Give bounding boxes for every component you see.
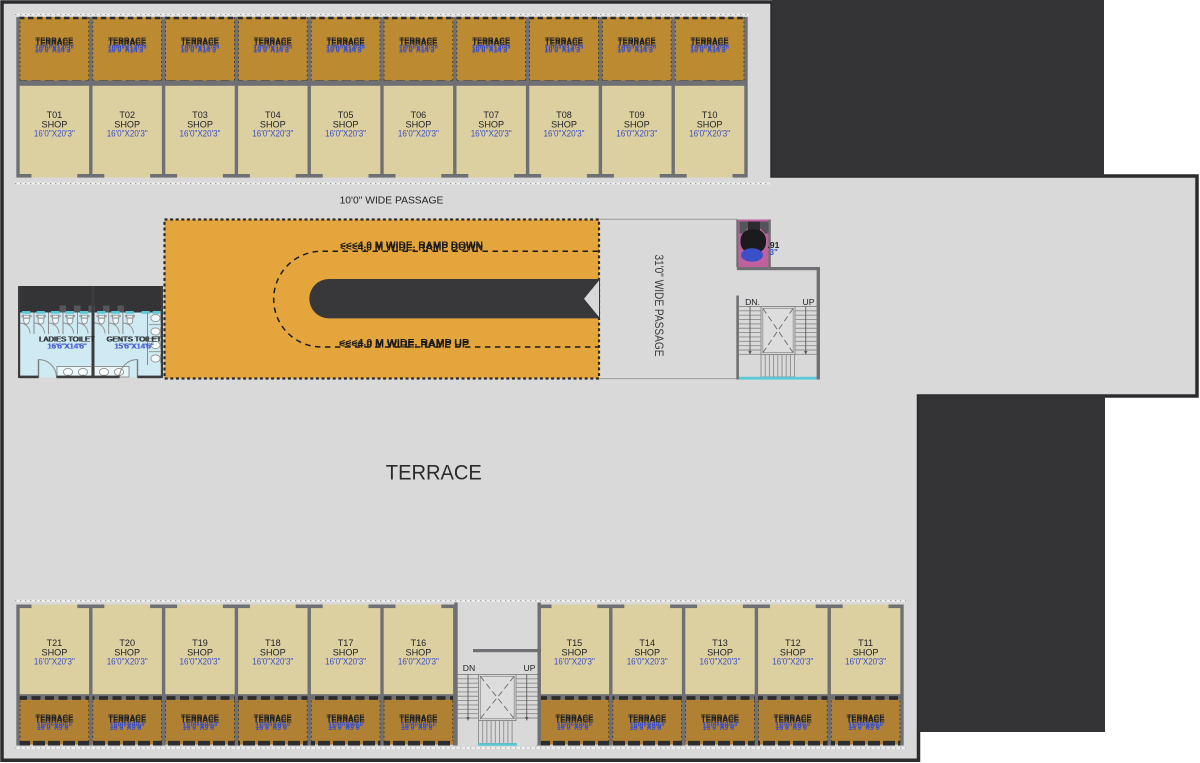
svg-text:16'0"X20'3": 16'0"X20'3" [180,657,221,667]
svg-text:T14: T14 [639,638,655,648]
svg-text:16'0"X20'3": 16'0"X20'3" [845,657,886,667]
svg-text:T13: T13 [712,638,728,648]
svg-text:16'0"X9'6": 16'0"X9'6" [557,721,592,730]
svg-text:T06: T06 [411,110,427,120]
svg-text:16'0"X9'6": 16'0"X9'6" [110,721,145,730]
svg-text:T03: T03 [192,110,208,120]
svg-text:10'0"X14'3": 10'0"X14'3" [472,43,511,52]
svg-text:T09: T09 [629,110,645,120]
svg-text:T18: T18 [265,638,281,648]
svg-text:16'0"X20'3": 16'0"X20'3" [34,129,75,139]
svg-text:16'0"X9'6": 16'0"X9'6" [183,721,218,730]
svg-text:<<<4.0 M WIDE. RAMP DOWN: <<<4.0 M WIDE. RAMP DOWN [340,240,483,250]
svg-text:16'0"X9'6": 16'0"X9'6" [255,721,290,730]
svg-text:T21: T21 [47,638,63,648]
svg-text:10'0"X14'3": 10'0"X14'3" [326,43,365,52]
svg-text:T19: T19 [192,638,208,648]
svg-text:16'0"X20'3": 16'0"X20'3" [180,129,221,139]
svg-text:16'0"X20'3": 16'0"X20'3" [325,129,366,139]
svg-text:16'0"X20'3": 16'0"X20'3" [325,657,366,667]
svg-text:TERRACE: TERRACE [386,461,482,485]
svg-text:16'0"X20'3": 16'0"X20'3" [34,657,75,667]
svg-text:10'0"X14'3": 10'0"X14'3" [108,43,147,52]
svg-text:16'0"X9'6": 16'0"X9'6" [401,721,436,730]
svg-text:16'0"X20'3": 16'0"X20'3" [616,129,657,139]
svg-text:15'6"X14'6": 15'6"X14'6" [115,341,154,350]
svg-text:16'0"X20'3": 16'0"X20'3" [772,657,813,667]
svg-text:16'0"X9'6": 16'0"X9'6" [775,721,810,730]
svg-text:T04: T04 [265,110,281,120]
svg-text:10'0"X14'3": 10'0"X14'3" [690,43,729,52]
svg-text:3": 3" [770,248,778,257]
svg-text:T10: T10 [702,110,718,120]
svg-text:16'0"X9'6": 16'0"X9'6" [630,721,665,730]
svg-text:10'0" WIDE PASSAGE: 10'0" WIDE PASSAGE [340,196,444,207]
svg-text:16'0"X9'6": 16'0"X9'6" [703,721,738,730]
svg-text:16'0"X20'3": 16'0"X20'3" [107,129,148,139]
svg-text:16'0"X9'6": 16'0"X9'6" [328,721,363,730]
svg-text:T17: T17 [338,638,354,648]
svg-text:10'0"X14'3": 10'0"X14'3" [617,43,656,52]
svg-text:16'0"X20'3": 16'0"X20'3" [398,657,439,667]
svg-text:UP: UP [803,297,815,307]
svg-text:T11: T11 [858,638,873,648]
svg-text:16'0"X9'6": 16'0"X9'6" [37,721,72,730]
svg-text:<<<4.0 M WIDE. RAMP UP: <<<4.0 M WIDE. RAMP UP [339,337,469,347]
svg-text:16'0"X20'3": 16'0"X20'3" [471,129,512,139]
svg-text:10'0"X14'3": 10'0"X14'3" [545,43,584,52]
svg-text:T01: T01 [47,110,63,120]
svg-text:16'0"X20'3": 16'0"X20'3" [252,129,293,139]
svg-text:16'0"X20'3": 16'0"X20'3" [252,657,293,667]
svg-text:T08: T08 [556,110,572,120]
svg-text:16'6"X14'6": 16'6"X14'6" [48,341,87,350]
svg-text:T16: T16 [411,638,427,648]
svg-text:16'0"X20'3": 16'0"X20'3" [544,129,585,139]
svg-text:T05: T05 [338,110,354,120]
svg-text:T07: T07 [483,110,499,120]
svg-text:T02: T02 [119,110,135,120]
svg-text:DN.: DN. [745,297,760,307]
svg-text:10'0"X14'3": 10'0"X14'3" [253,43,292,52]
svg-text:16'0"X20'3": 16'0"X20'3" [554,657,595,667]
svg-text:DN: DN [463,663,475,673]
svg-text:31'0" WIDE PASSAGE: 31'0" WIDE PASSAGE [652,255,666,357]
svg-text:UP: UP [524,663,536,673]
svg-text:T15: T15 [567,638,583,648]
svg-text:16'0"X20'3": 16'0"X20'3" [107,657,148,667]
svg-text:16'0"X20'3": 16'0"X20'3" [700,657,741,667]
svg-text:16'0"X20'3": 16'0"X20'3" [689,129,730,139]
svg-text:T20: T20 [119,638,135,648]
svg-text:16'0"X20'3": 16'0"X20'3" [398,129,439,139]
svg-text:10'0"X14'3": 10'0"X14'3" [399,43,438,52]
svg-text:16'0"X9'6": 16'0"X9'6" [848,721,883,730]
svg-text:10'0"X14'3": 10'0"X14'3" [35,43,74,52]
svg-text:16'0"X20'3": 16'0"X20'3" [627,657,668,667]
svg-text:T12: T12 [785,638,801,648]
svg-text:10'0"X14'3": 10'0"X14'3" [181,43,220,52]
